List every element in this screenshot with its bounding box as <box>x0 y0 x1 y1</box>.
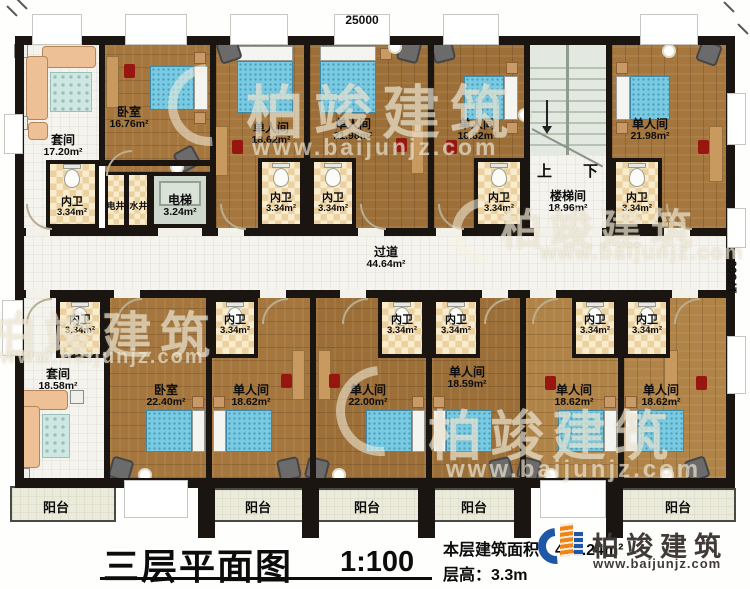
room-area: 3.34m² <box>609 204 665 215</box>
room-label-single-top-4: 单人间 21.98m² <box>610 118 690 143</box>
bed-headboard <box>320 46 376 61</box>
room-name: 单人间 <box>534 384 614 397</box>
column-post <box>198 482 215 538</box>
room-area: 3.34m² <box>619 326 675 337</box>
room-label-suite-top: 套间 17.20m² <box>23 134 103 159</box>
rug <box>42 414 70 458</box>
room-name: 单人间 <box>427 366 507 379</box>
bed <box>638 410 684 452</box>
bath-label: 内卫 3.34m² <box>567 314 623 337</box>
bed-headboard <box>192 410 205 452</box>
window <box>230 14 288 45</box>
sofa <box>42 46 96 68</box>
room-name: 楼梯间 <box>528 190 608 203</box>
title-underline <box>100 577 432 580</box>
bed-headboard <box>604 410 617 452</box>
bed-headboard <box>616 76 630 120</box>
desk <box>709 126 723 182</box>
room-label-single-top-1: 单人间 18.62m² <box>231 122 311 147</box>
company-logo-building-blue <box>574 532 583 556</box>
bath-label: 内卫 3.34m² <box>374 314 430 337</box>
room-area: 22.40m² <box>126 397 206 409</box>
stair-stringer <box>566 45 569 155</box>
door-gap <box>340 290 366 298</box>
dimension-right: 17500 <box>726 260 740 293</box>
room-name: 电梯 <box>150 194 210 207</box>
stair-arrow-head <box>542 126 552 134</box>
bath-label: 内卫 3.34m² <box>52 314 108 337</box>
tv <box>698 140 709 154</box>
bath-label: 内卫 3.34m² <box>305 192 361 215</box>
floor-height-line: 层高：3.3m <box>443 561 527 585</box>
corridor-label: 过道 44.64m² <box>346 246 426 271</box>
toilet-icon <box>325 168 341 187</box>
nightstand <box>506 62 518 74</box>
bath-label: 内卫 3.34m² <box>471 192 527 215</box>
room-area: 44.64m² <box>346 259 426 271</box>
company-logo-building-orange <box>560 523 573 557</box>
room-name: 单人间 <box>313 118 393 131</box>
plan-title: 三层平面图 <box>103 538 293 589</box>
nightstand <box>412 396 424 408</box>
room-label-single-bottom-2: 单人间 22.00m² <box>328 384 408 409</box>
wall-exterior-bottom <box>15 478 735 488</box>
nightstand <box>194 112 206 124</box>
room-area: 3.34m² <box>374 326 430 337</box>
toilet-icon <box>273 168 289 187</box>
bed <box>630 76 670 120</box>
bath-label: 内卫 3.34m² <box>44 196 100 219</box>
wall-partition <box>210 36 216 232</box>
bed <box>464 76 504 120</box>
floor-height-value: 3.3m <box>491 567 527 584</box>
room-area: 3.34m² <box>471 204 527 215</box>
room-label-single-top-2: 单人间 21.98m² <box>313 118 393 143</box>
desk <box>411 124 424 174</box>
room-name: 套间 <box>18 368 98 381</box>
bed <box>558 410 604 452</box>
company-website: www.baijunjz.com <box>593 556 721 571</box>
room-area: 18.62m² <box>231 135 311 147</box>
electric-shaft-label: 电井 <box>104 199 127 212</box>
stair-arrow-line <box>546 100 548 126</box>
bed-headboard <box>194 66 208 110</box>
window <box>32 14 82 45</box>
column-post <box>302 482 319 538</box>
door-gap <box>672 290 698 298</box>
room-area: 22.00m² <box>328 397 408 409</box>
dimension-top: 25000 <box>332 13 392 27</box>
room-label-bedroom-top: 卧室 16.76m² <box>89 106 169 131</box>
room-name: 单人间 <box>328 384 408 397</box>
bed-headboard <box>213 410 226 452</box>
bath-label: 内卫 3.34m² <box>619 314 675 337</box>
room-area: 18.62m² <box>621 397 701 409</box>
door-gap <box>530 290 556 298</box>
elevator-opening <box>158 228 202 236</box>
door-gap <box>26 290 50 298</box>
bay-window <box>540 480 606 518</box>
wall-partition <box>310 290 316 482</box>
elevator-label: 电梯 3.24m² <box>150 194 210 219</box>
door-gap <box>482 290 508 298</box>
room-name: 卧室 <box>126 384 206 397</box>
nightstand <box>194 52 206 64</box>
room-name: 单人间 <box>610 118 690 131</box>
room-label-single-bottom-1: 单人间 18.62m² <box>211 384 291 409</box>
bed <box>226 410 272 452</box>
bath-label: 内卫 3.34m² <box>253 192 309 215</box>
balcony-label: 阳台 <box>228 497 288 516</box>
dimension-tick <box>723 1 734 12</box>
door-gap <box>260 290 286 298</box>
stairs-up-label: 上 <box>537 160 552 181</box>
tv <box>396 138 407 152</box>
bed-headboard <box>412 410 425 452</box>
room-area: 18.96m² <box>528 203 608 215</box>
room-area: 21.98m² <box>610 131 690 143</box>
wall-partition <box>520 290 526 482</box>
room-area: 17.20m² <box>23 147 103 159</box>
balcony-label: 阳台 <box>337 497 397 516</box>
room-area: 18.62m² <box>437 131 517 143</box>
bed <box>366 410 412 452</box>
column-post <box>418 482 435 538</box>
bath-label: 内卫 3.34m² <box>207 314 263 337</box>
bed-headboard <box>237 46 293 61</box>
room-area: 16.76m² <box>89 119 169 131</box>
bed <box>446 410 492 452</box>
room-area: 18.58m² <box>18 381 98 393</box>
window <box>2 300 23 356</box>
desk <box>106 56 119 108</box>
window <box>727 336 746 394</box>
bath-label: 内卫 3.34m² <box>609 192 665 215</box>
room-label-single-bottom-4: 单人间 18.62m² <box>534 384 614 409</box>
room-name: 单人间 <box>231 122 311 135</box>
balcony-label: 阳台 <box>26 497 86 516</box>
window <box>443 14 499 45</box>
tv <box>124 64 135 78</box>
floor-height-label: 层高： <box>443 567 491 584</box>
window <box>640 14 698 45</box>
room-area: 3.34m² <box>44 208 100 219</box>
room-name: 过道 <box>346 246 426 259</box>
room-area: 21.98m² <box>313 131 393 143</box>
stairwell-label: 楼梯间 18.96m² <box>528 190 608 215</box>
floor-plan-page: 套间 17.20m² 卧室 16.76m² 单人间 18.62m² 单人间 21… <box>0 0 750 589</box>
room-area: 3.34m² <box>567 326 623 337</box>
dimension-tick <box>16 0 27 10</box>
desk <box>292 350 305 400</box>
toilet-icon <box>491 168 507 187</box>
window <box>125 14 187 45</box>
stairs-down-label: 下 <box>583 160 598 181</box>
balcony-label: 阳台 <box>648 497 708 516</box>
plan-scale: 1:100 <box>340 546 414 579</box>
window <box>727 93 746 145</box>
window <box>727 208 746 248</box>
wall-partition <box>428 36 434 232</box>
nightstand <box>616 62 628 74</box>
room-area: 18.62m² <box>211 397 291 409</box>
room-name: 套间 <box>23 134 103 147</box>
wall-exterior-left <box>15 36 24 482</box>
room-name: 单人间 <box>621 384 701 397</box>
bed <box>146 410 192 452</box>
room-area: 3.34m² <box>305 204 361 215</box>
room-area: 3.34m² <box>428 326 484 337</box>
bed-headboard <box>625 410 638 452</box>
room-label-single-bottom-3: 单人间 18.59m² <box>427 366 507 391</box>
bed <box>320 61 376 113</box>
bed <box>150 66 194 110</box>
room-label-bedroom-bottom: 卧室 22.40m² <box>126 384 206 409</box>
room-name: 卧室 <box>89 106 169 119</box>
room-label-single-bottom-5: 单人间 18.62m² <box>621 384 701 409</box>
room-name: 单人间 <box>211 384 291 397</box>
dimension-tick <box>6 5 17 16</box>
nightstand <box>433 396 445 408</box>
toilet-icon <box>64 169 80 188</box>
desk <box>215 126 228 176</box>
toilet-icon <box>629 168 645 187</box>
bed-headboard <box>433 410 446 452</box>
bay-window <box>124 480 188 518</box>
stairwell-opening <box>534 228 602 236</box>
room-area: 3.34m² <box>253 204 309 215</box>
rug <box>50 72 92 112</box>
room-label-single-top-3: 单人间 18.62m² <box>437 118 517 143</box>
bed <box>237 61 293 113</box>
door-gap <box>114 290 140 298</box>
water-shaft-label: 水井 <box>127 199 150 212</box>
room-area: 3.34m² <box>207 326 263 337</box>
room-label-suite-bottom: 套间 18.58m² <box>18 368 98 393</box>
dimension-tick <box>737 23 748 34</box>
room-area: 18.62m² <box>534 397 614 409</box>
sofa <box>26 56 48 120</box>
room-area: 18.59m² <box>427 379 507 391</box>
room-area: 3.34m² <box>52 326 108 337</box>
bath-label: 内卫 3.34m² <box>428 314 484 337</box>
room-area: 3.24m² <box>150 207 210 219</box>
lamp <box>662 44 676 58</box>
window <box>4 114 23 154</box>
bed-headboard <box>504 76 518 120</box>
balcony-label: 阳台 <box>444 497 504 516</box>
room-name: 单人间 <box>437 118 517 131</box>
column-post <box>514 482 531 538</box>
